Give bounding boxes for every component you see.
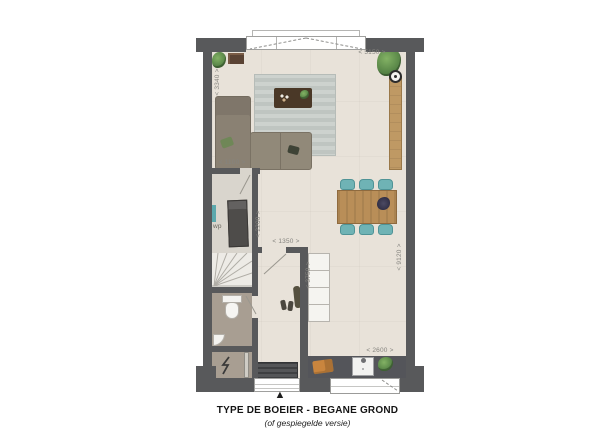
wall-stairs-toilet	[212, 287, 258, 293]
faucet-icon	[361, 358, 366, 363]
door-opening-toilet	[252, 296, 258, 318]
heat-pump-unit	[227, 200, 249, 248]
dining-chair	[340, 224, 355, 235]
wall-right	[406, 52, 415, 366]
lightning-bolt-icon	[220, 356, 234, 376]
entrance-arrow-icon: ▲	[268, 389, 292, 401]
dining-chair	[378, 224, 393, 235]
door-opening-storage	[240, 168, 252, 174]
wall-ear-top-left	[196, 38, 246, 52]
toilet-bowl-icon	[225, 302, 239, 319]
dining-chair	[359, 179, 374, 190]
window-kitchen	[330, 378, 400, 394]
dining-chair	[340, 179, 355, 190]
meter-closet-door	[244, 352, 249, 378]
wall-toilet-meterkast	[212, 346, 258, 352]
sideboard	[389, 76, 402, 170]
wall-left	[203, 52, 212, 366]
dim-closet-depth: < 2200 >	[255, 204, 263, 244]
dining-chair	[359, 224, 374, 235]
dim-kitchen-width: < 2600 >	[358, 347, 402, 355]
wall-ear-bottom-right	[406, 366, 424, 392]
plan-subtitle: (of gespiegelde versie)	[0, 418, 615, 428]
dining-chair	[378, 179, 393, 190]
stairs	[212, 253, 252, 287]
dim-living-depth: < 3340 >	[214, 62, 222, 102]
dim-house-depth: < 9120 >	[396, 237, 404, 277]
wall-cabinet	[228, 53, 244, 64]
dim-width-top: < 5150 >	[348, 49, 396, 57]
wall-ear-bottom-left	[196, 366, 216, 392]
cutting-board-icon	[312, 359, 334, 375]
speaker-center-dot	[394, 75, 397, 78]
sofa-seat	[250, 132, 312, 170]
utility-room-label: wp	[213, 223, 225, 231]
dim-hall-width: < 1350 >	[266, 238, 306, 246]
floorplan-canvas: < 5150 > < 3340 > < 1100 > < 2200 > < 13…	[0, 0, 615, 436]
plan-title: TYPE DE BOEIER - BEGANE GROND	[0, 405, 615, 416]
door-opening-hall	[262, 247, 286, 253]
window-top-facade	[246, 36, 366, 50]
radiator	[212, 205, 216, 222]
coffee-table-cups-icon	[280, 94, 290, 102]
dim-kitchen-depth: < 3750 >	[305, 255, 313, 295]
sink-drain-dot	[362, 368, 364, 370]
dim-closet-width: < 1100 >	[212, 159, 252, 167]
